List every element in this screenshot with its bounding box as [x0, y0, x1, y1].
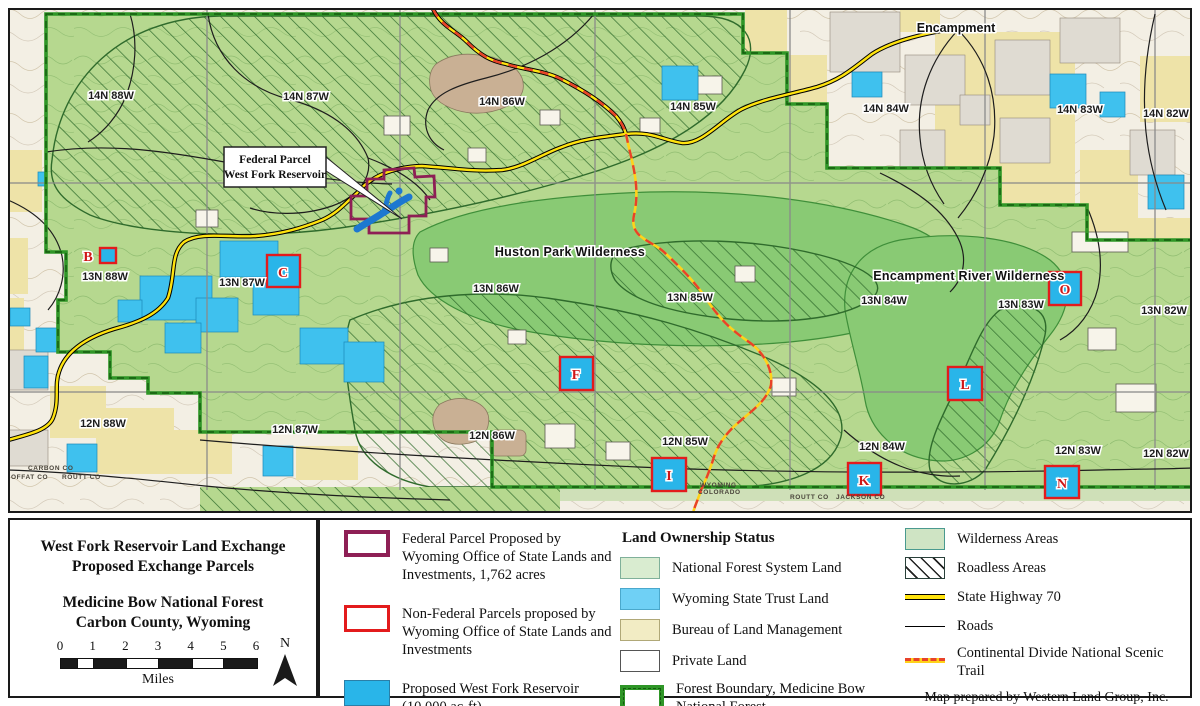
legend-label: State Highway 70: [957, 588, 1061, 606]
township-label: 14N 84W: [863, 103, 909, 115]
topographic-map: BCFIKLNO Federal Parcel West Fork Reserv…: [8, 8, 1192, 513]
county-line-label: MOFFAT CO: [8, 474, 48, 481]
legend-label: Roads: [957, 617, 993, 635]
legend-label: Proposed West Fork Reservoir (10,000 ac-…: [402, 680, 616, 706]
county-line-label: ROUTT CO: [62, 474, 101, 481]
scale-bar-segments: [60, 658, 258, 669]
legend-ownership-column: Land Ownership Status National Forest Sy…: [620, 528, 905, 706]
callout-line2: West Fork Reservoir: [224, 169, 326, 181]
scale-segment: [77, 659, 93, 668]
road-line-swatch: [905, 626, 945, 627]
legend-item-nfs: National Forest System Land: [620, 556, 905, 580]
scale-tick-label: 0: [57, 638, 64, 654]
legend-label: Bureau of Land Management: [672, 621, 842, 639]
map-title-line1: West Fork Reservoir Land Exchange: [10, 538, 316, 556]
legend-item-state: Wyoming State Trust Land: [620, 587, 905, 611]
scale-segment: [94, 659, 127, 668]
scale-segment: [224, 659, 257, 668]
township-label: 14N 85W: [670, 101, 716, 113]
north-arrow: N: [270, 636, 300, 691]
parcel-letter-K: K: [859, 474, 870, 489]
township-label: 14N 83W: [1057, 104, 1103, 116]
ownership-heading: Land Ownership Status: [622, 530, 905, 547]
map-title-line3: Medicine Bow National Forest: [10, 594, 316, 612]
parcel-letter-N: N: [1057, 477, 1067, 492]
legend-item-boundary: Forest Boundary, Medicine Bow National F…: [620, 680, 905, 706]
township-label: 14N 86W: [479, 96, 525, 108]
township-label: 12N 88W: [80, 418, 126, 430]
county-line-label: COLORADO: [698, 489, 741, 496]
legend-features-column: Wilderness AreasRoadless AreasState High…: [905, 528, 1188, 706]
scale-segment: [192, 659, 225, 668]
state-swatch: [620, 588, 660, 610]
scale-segment: [126, 659, 159, 668]
township-label: 13N 84W: [861, 295, 907, 307]
parcel-letter-C: C: [278, 266, 288, 281]
trail-swatch: [905, 651, 945, 673]
legend-item-highway: State Highway 70: [905, 586, 1188, 608]
township-label: 13N 83W: [998, 299, 1044, 311]
legend-label: Wyoming State Trust Land: [672, 590, 829, 608]
scale-segment: [61, 659, 77, 668]
legend-label: Wilderness Areas: [957, 530, 1058, 548]
roadless-swatch: [905, 557, 945, 579]
scale-tick-label: 5: [220, 638, 227, 654]
credit-line1: Map prepared by Western Land Group, Inc.: [905, 688, 1188, 706]
scale-tick-label: 1: [89, 638, 96, 654]
town-label: Encampment: [917, 21, 996, 35]
legend-label: Non-Federal Parcels proposed by Wyoming …: [402, 605, 616, 659]
county-line-label: WYOMING: [700, 482, 737, 489]
forest-strip-south-hatch: [200, 487, 560, 513]
federal-swatch: [344, 530, 390, 557]
highway-line-swatch: [905, 594, 945, 600]
reservoir-swatch: [344, 680, 390, 706]
parcel-letter-B: B: [83, 250, 92, 265]
callout-box: [224, 147, 326, 187]
legend-item-blm: Bureau of Land Management: [620, 618, 905, 642]
legend-label: Continental Divide National Scenic Trail: [957, 644, 1188, 680]
map-title-line2: Proposed Exchange Parcels: [10, 558, 316, 576]
map-credit: Map prepared by Western Land Group, Inc.…: [905, 688, 1188, 706]
township-label: 13N 87W: [219, 277, 265, 289]
township-label: 14N 88W: [88, 90, 134, 102]
legend-item-roadless: Roadless Areas: [905, 557, 1188, 579]
title-panel: West Fork Reservoir Land Exchange Propos…: [8, 518, 318, 698]
legend-panel: Federal Parcel Proposed by Wyoming Offic…: [318, 518, 1192, 698]
nonfederal-swatch: [344, 605, 390, 632]
map-title-line4: Carbon County, Wyoming: [10, 614, 316, 632]
legend-item-wilderness: Wilderness Areas: [905, 528, 1188, 550]
parcel-letter-O: O: [1060, 283, 1071, 298]
callout-line1: Federal Parcel: [239, 154, 311, 166]
township-label: 13N 88W: [82, 271, 128, 283]
private-swatch: [620, 650, 660, 672]
legend-item-reservoir: Proposed West Fork Reservoir (10,000 ac-…: [344, 680, 616, 706]
county-line-label: JACKSON CO: [836, 494, 885, 501]
scale-segment: [159, 659, 192, 668]
parcel-letter-F: F: [572, 368, 581, 383]
map-sheet: BCFIKLNO Federal Parcel West Fork Reserv…: [0, 0, 1200, 706]
township-label: 12N 83W: [1055, 445, 1101, 457]
map-area: BCFIKLNO Federal Parcel West Fork Reserv…: [8, 8, 1192, 513]
legend-item-trail: Continental Divide National Scenic Trail: [905, 644, 1188, 680]
township-label: 12N 85W: [662, 436, 708, 448]
scale-tick-label: 6: [253, 638, 260, 654]
legend-item-private: Private Land: [620, 649, 905, 673]
road-swatch: [905, 615, 945, 637]
legend-item-road: Roads: [905, 615, 1188, 637]
legend-label: Private Land: [672, 652, 747, 670]
legend-label: Forest Boundary, Medicine Bow National F…: [676, 680, 905, 706]
parcel-letter-L: L: [960, 378, 969, 393]
north-arrow-icon: [273, 654, 297, 686]
township-label: 14N 87W: [283, 91, 329, 103]
trail-line-swatch: [905, 658, 945, 663]
nfs-swatch: [620, 557, 660, 579]
blm-swatch: [620, 619, 660, 641]
township-label: 13N 85W: [667, 292, 713, 304]
legend-item-nonfederal: Non-Federal Parcels proposed by Wyoming …: [344, 605, 616, 659]
township-label: 12N 87W: [272, 424, 318, 436]
parcel-letter-I: I: [666, 469, 671, 484]
legend-label: Federal Parcel Proposed by Wyoming Offic…: [402, 530, 616, 584]
scale-tick-label: 4: [187, 638, 194, 654]
scale-bar: Miles 0123456: [60, 638, 260, 686]
county-line-label: ROUTT CO: [790, 494, 829, 501]
north-label: N: [270, 636, 300, 652]
wilderness-swatch: [905, 528, 945, 550]
township-label: 13N 82W: [1141, 305, 1187, 317]
legend-label: National Forest System Land: [672, 559, 842, 577]
wilderness-label: Huston Park Wilderness: [495, 245, 645, 259]
highway-swatch: [905, 586, 945, 608]
scale-tick-label: 2: [122, 638, 129, 654]
boundary-swatch: [620, 685, 664, 706]
township-label: 13N 86W: [473, 283, 519, 295]
scale-unit-label: Miles: [60, 672, 256, 688]
legend-item-federal: Federal Parcel Proposed by Wyoming Offic…: [344, 530, 616, 584]
wilderness-label: Encampment River Wilderness: [873, 269, 1064, 283]
township-label: 14N 82W: [1143, 108, 1189, 120]
township-label: 12N 82W: [1143, 448, 1189, 460]
scale-tick-label: 3: [155, 638, 162, 654]
parcel-B: [100, 248, 116, 263]
township-label: 12N 86W: [469, 430, 515, 442]
legend-parcel-column: Federal Parcel Proposed by Wyoming Offic…: [344, 530, 616, 706]
township-label: 12N 84W: [859, 441, 905, 453]
legend-label: Roadless Areas: [957, 559, 1046, 577]
county-line-label: CARBON CO: [28, 465, 73, 472]
